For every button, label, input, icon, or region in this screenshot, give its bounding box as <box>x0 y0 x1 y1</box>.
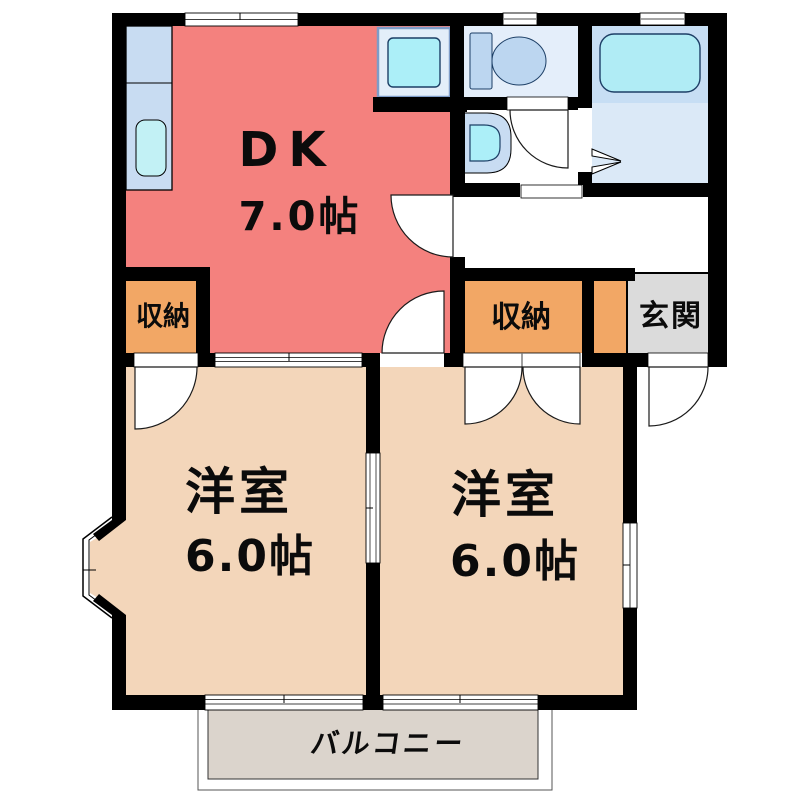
wall-toilet-bath-a <box>578 13 592 108</box>
wall-band-e <box>582 353 648 367</box>
storage-left-label: 収納 <box>136 304 190 331</box>
wall-washroom-hall <box>450 183 520 197</box>
line-shoe-entrance <box>626 281 628 353</box>
western-room-right-floor <box>380 367 623 695</box>
floor-plan: DK 7.0帖 洋室 6.0帖 洋室 6.0帖 収納 収納 玄関 バルコニー <box>0 0 800 800</box>
bathroom-lower-floor <box>592 103 708 183</box>
wall-left-upper <box>112 13 126 520</box>
toilet-tank <box>470 33 492 89</box>
dk-room-size: 7.0帖 <box>239 197 362 237</box>
wall-hall-storage <box>462 268 635 281</box>
shoe-storage-floor <box>594 281 626 353</box>
entrance-door-leaf <box>648 353 708 367</box>
wall-dk-right-a <box>450 112 465 195</box>
wall-band-a <box>112 353 135 367</box>
washing-machine-pan-inner <box>388 38 440 87</box>
wall-storage-right-div <box>582 281 594 353</box>
wall-roomright-a <box>623 367 637 523</box>
kitchen-sink <box>136 120 166 176</box>
balcony-label: バルコニー <box>309 730 467 758</box>
wall-toilet-washroom-a <box>450 97 507 110</box>
bathroom-door-opening <box>578 108 592 172</box>
wall-bath-bottom <box>583 183 708 197</box>
wall-toilet-bath-b <box>578 172 592 185</box>
entrance-label: 玄関 <box>639 302 703 332</box>
western-room-left-label: 洋室 <box>185 467 293 517</box>
western-room-right-label: 洋室 <box>451 470 559 520</box>
floors <box>90 26 708 790</box>
wash-basin <box>470 125 500 161</box>
storage-left-door-leaf <box>134 353 198 367</box>
wall-band-c <box>362 353 380 367</box>
floor-plan-drawing <box>0 0 800 800</box>
wall-storage-left-top <box>112 267 210 281</box>
bathtub <box>600 34 700 92</box>
storage-right-label: 収納 <box>491 303 551 333</box>
wall-right <box>708 13 727 367</box>
line-entrance-top <box>628 272 708 274</box>
wall-dk-toilet <box>450 26 464 97</box>
wall-roomright-b <box>623 608 637 695</box>
hallway-floor <box>464 197 708 272</box>
wall-interroom-a <box>366 367 380 453</box>
toilet-door-leaf <box>507 97 568 110</box>
wall-bottom <box>112 695 637 710</box>
wall-band-b <box>198 353 215 367</box>
toilet-bowl <box>492 37 546 85</box>
dk-room-label: DK <box>238 126 335 174</box>
washroom-sliding-door <box>521 185 582 198</box>
western-room-left-size: 6.0帖 <box>185 535 315 579</box>
western-room-right-size: 6.0帖 <box>450 540 580 584</box>
entrance-door-swing <box>649 367 708 426</box>
wall-storage-left-right <box>196 281 210 353</box>
wall-interroom-b <box>366 563 380 695</box>
